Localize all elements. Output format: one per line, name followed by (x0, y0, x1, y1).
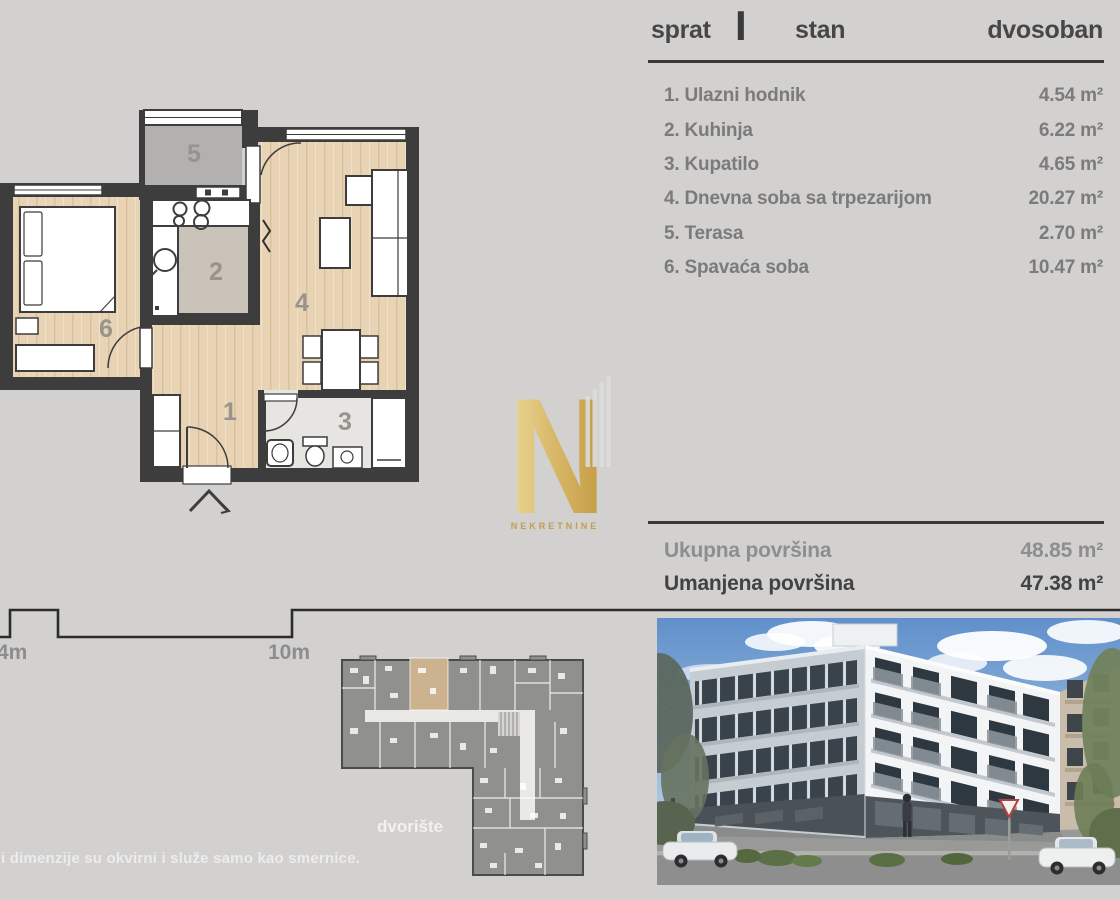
room-row: 4. Dnevna soba sa trpezarijom 20.27 m² (664, 188, 1103, 210)
brochure-page: 5 2 4 6 1 3 N NEKRETNINE sprat (0, 0, 1120, 900)
room-name: 5. Terasa (664, 223, 743, 245)
disclaimer-text: i dimenzije su okvirni i služe samo kao … (1, 850, 360, 867)
rooftop-structure (833, 624, 897, 646)
room-name: 2. Kuhinja (664, 120, 753, 142)
room-label-living: 4 (295, 289, 309, 317)
room-label-bath: 3 (338, 408, 352, 436)
entrance-arrow-icon (190, 491, 229, 513)
floor-value: I (735, 2, 747, 50)
site-stairwell (498, 712, 520, 736)
scale-label-10m: 10m (268, 641, 310, 664)
logo-caption: NEKRETNINE (511, 521, 600, 531)
net-area-value: 47.38 m² (1021, 572, 1103, 596)
room-row: 2. Kuhinja 6.22 m² (664, 120, 1103, 142)
room-row: 6. Spavaća soba 10.47 m² (664, 257, 1103, 279)
site-caption: dvorište (377, 817, 443, 836)
building-left-face (690, 645, 865, 838)
room-name: 6. Spavaća soba (664, 257, 809, 279)
room-row: 5. Terasa 2.70 m² (664, 223, 1103, 245)
building-site-plan: dvorište (330, 648, 595, 883)
gross-area-label: Ukupna površina (664, 539, 831, 563)
gross-area-value: 48.85 m² (1021, 539, 1103, 563)
room-name: 4. Dnevna soba sa trpezarijom (664, 188, 932, 210)
net-area-row: Umanjena površina 47.38 m² (664, 572, 1103, 596)
net-area-label: Umanjena površina (664, 572, 854, 596)
unit-type: dvosoban (987, 16, 1103, 45)
room-label-bedroom: 6 (99, 315, 113, 343)
wardrobe (153, 395, 180, 467)
room-area: 10.47 m² (1029, 257, 1103, 279)
totals-divider (648, 521, 1104, 524)
toilet-icon (303, 437, 327, 446)
room-row: 3. Kupatilo 4.65 m² (664, 154, 1103, 176)
scale-label-4m: 4m (0, 641, 27, 664)
bath-cabinet (372, 398, 406, 468)
brand-logo: N NEKRETNINE (490, 372, 625, 537)
room-area: 4.65 m² (1039, 154, 1103, 176)
room-area: 6.22 m² (1039, 120, 1103, 142)
room-label-terrace: 5 (187, 140, 201, 168)
kitchen-sink-icon (154, 249, 176, 271)
site-highlighted-unit (410, 658, 448, 710)
nightstand (16, 318, 38, 334)
washer-icon (333, 447, 362, 468)
floor-label: sprat (651, 16, 711, 45)
bedroom-dresser (16, 345, 94, 371)
building-render (657, 618, 1120, 885)
room-area: 4.54 m² (1039, 85, 1103, 107)
room-row: 1. Ulazni hodnik 4.54 m² (664, 85, 1103, 107)
header-divider (648, 60, 1104, 63)
room-name: 1. Ulazni hodnik (664, 85, 805, 107)
room-label-hall: 1 (223, 398, 237, 426)
logo-letter: N (508, 372, 606, 537)
unit-label: stan (795, 16, 845, 45)
site-building-outline (342, 660, 583, 875)
room-area: 20.27 m² (1029, 188, 1103, 210)
bed (20, 207, 115, 312)
coffee-table (320, 218, 350, 268)
site-corridor-vertical (520, 710, 535, 820)
room-area: 2.70 m² (1039, 223, 1103, 245)
room-name: 3. Kupatilo (664, 154, 759, 176)
gross-area-row: Ukupna površina 48.85 m² (664, 539, 1103, 563)
room-label-kitchen: 2 (209, 258, 223, 286)
apartment-floor-plan: 5 2 4 6 1 3 (0, 100, 440, 520)
